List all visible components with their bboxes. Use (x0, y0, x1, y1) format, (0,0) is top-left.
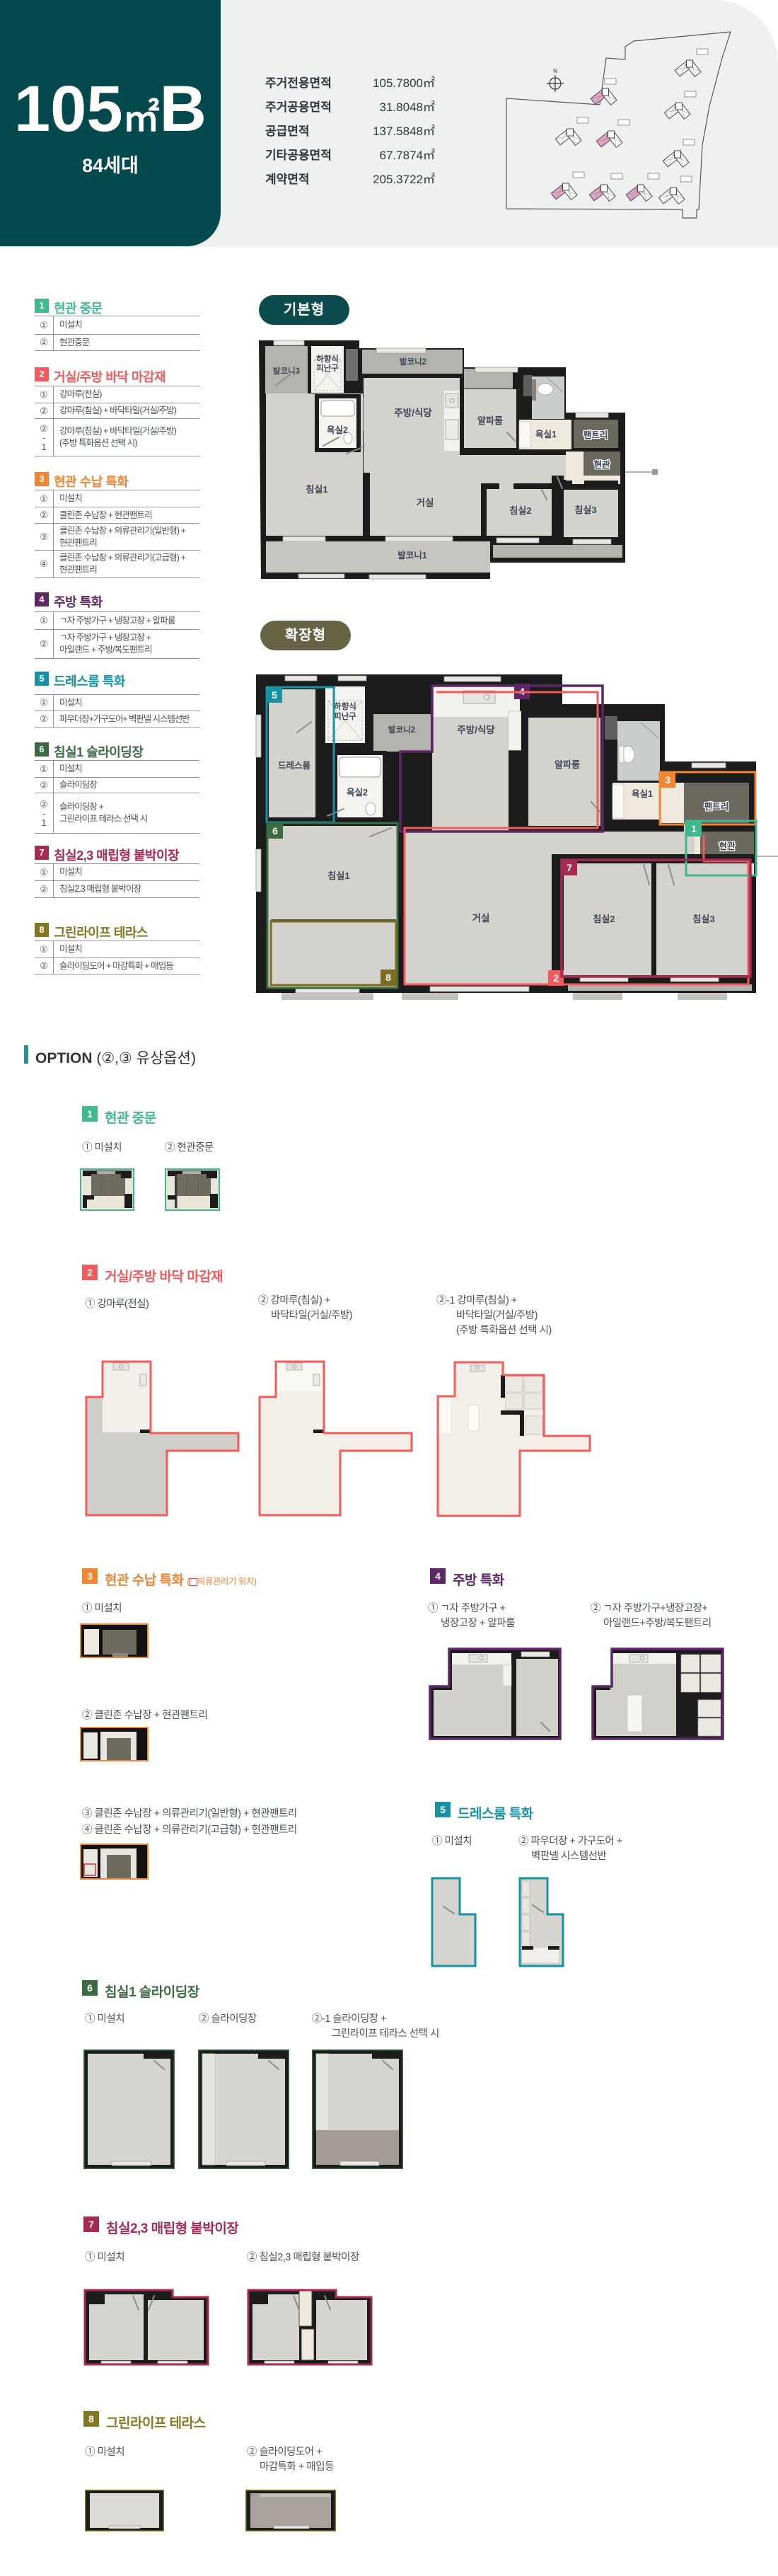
svg-text:침실3: 침실3 (692, 914, 714, 924)
svg-text:8: 8 (385, 972, 391, 983)
svg-text:침실3: 침실3 (574, 505, 596, 515)
svg-text:3: 3 (665, 774, 670, 786)
svg-text:6: 6 (272, 825, 278, 836)
svg-text:현관: 현관 (593, 459, 610, 470)
svg-text:알파룸: 알파룸 (477, 415, 503, 426)
svg-text:욕실1: 욕실1 (632, 788, 653, 799)
svg-text:침실1: 침실1 (327, 870, 349, 881)
svg-text:발코니2: 발코니2 (400, 357, 426, 367)
svg-text:알파룸: 알파룸 (555, 759, 580, 770)
svg-text:침실2: 침실2 (593, 914, 615, 924)
svg-text:발코니1: 발코니1 (397, 550, 427, 560)
svg-text:5: 5 (272, 689, 277, 701)
svg-text:주방/식당: 주방/식당 (394, 407, 432, 418)
svg-text:욕실1: 욕실1 (535, 429, 557, 439)
svg-text:피난구: 피난구 (334, 711, 356, 721)
svg-text:하향식: 하향식 (334, 701, 356, 711)
svg-text:침실2: 침실2 (509, 505, 531, 516)
svg-text:거실: 거실 (417, 498, 434, 508)
svg-text:N: N (553, 68, 557, 74)
svg-text:욕실2: 욕실2 (347, 787, 368, 798)
svg-text:발코니3: 발코니3 (273, 366, 300, 376)
svg-text:2: 2 (553, 972, 559, 984)
svg-text:주방/식당: 주방/식당 (457, 724, 495, 735)
svg-text:현관: 현관 (719, 841, 736, 851)
svg-text:거실: 거실 (472, 913, 490, 924)
svg-text:팬트리: 팬트리 (583, 430, 608, 440)
svg-text:7: 7 (567, 862, 572, 873)
svg-text:욕실2: 욕실2 (327, 425, 348, 435)
svg-text:팬트리: 팬트리 (704, 801, 729, 812)
svg-text:피난구: 피난구 (316, 363, 339, 373)
svg-text:1: 1 (691, 823, 697, 834)
svg-text:발코니2: 발코니2 (388, 725, 415, 735)
svg-text:하향식: 하향식 (316, 354, 339, 364)
svg-text:침실1: 침실1 (306, 484, 327, 495)
svg-text:드레스룸: 드레스룸 (278, 760, 311, 771)
